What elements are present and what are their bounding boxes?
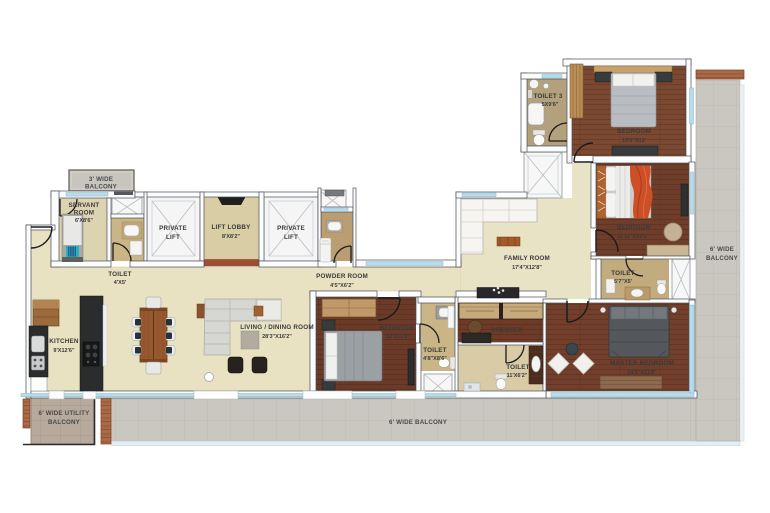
svg-text:DRESSER: DRESSER xyxy=(491,327,523,334)
svg-text:8'X8'2": 8'X8'2" xyxy=(222,234,240,240)
svg-text:TOILET: TOILET xyxy=(611,270,634,277)
svg-text:BEDROOM: BEDROOM xyxy=(617,128,651,135)
svg-text:BALCONY: BALCONY xyxy=(48,419,81,426)
svg-text:ROOM: ROOM xyxy=(74,210,94,217)
svg-text:11'11"X12'6": 11'11"X12'6" xyxy=(617,234,650,240)
svg-text:SERVANT: SERVANT xyxy=(69,202,100,209)
svg-text:4'8"X8'6": 4'8"X8'6" xyxy=(423,356,447,362)
svg-text:TOILET: TOILET xyxy=(423,347,446,354)
svg-text:LIFT: LIFT xyxy=(284,234,298,241)
svg-text:KITCHEN: KITCHEN xyxy=(49,338,79,345)
svg-text:LIVING / DINING ROOM: LIVING / DINING ROOM xyxy=(240,324,314,331)
svg-text:15'5"X12': 15'5"X12' xyxy=(622,138,647,144)
svg-text:FAMILY ROOM: FAMILY ROOM xyxy=(504,255,550,262)
svg-text:LIFT LOBBY: LIFT LOBBY xyxy=(211,224,251,231)
svg-text:6'X8'6": 6'X8'6" xyxy=(75,218,93,224)
svg-text:6' WIDE BALCONY: 6' WIDE BALCONY xyxy=(389,419,448,426)
svg-text:12'X11'8": 12'X11'8" xyxy=(386,334,410,340)
svg-text:BEDROOM: BEDROOM xyxy=(617,224,651,231)
svg-text:4'X5': 4'X5' xyxy=(114,280,127,286)
svg-text:TOILET: TOILET xyxy=(108,271,131,278)
svg-text:6' WIDE UTILITY: 6' WIDE UTILITY xyxy=(39,410,91,417)
svg-text:5X9'6": 5X9'6" xyxy=(542,102,559,108)
svg-text:PRIVATE: PRIVATE xyxy=(159,225,187,232)
svg-text:TOILET: TOILET xyxy=(506,364,529,371)
svg-text:11'X6'2": 11'X6'2" xyxy=(507,373,528,379)
svg-text:POWDER ROOM: POWDER ROOM xyxy=(316,273,368,280)
svg-text:28'3"X16'2": 28'3"X16'2" xyxy=(262,334,292,340)
svg-text:6' WIDE: 6' WIDE xyxy=(710,246,734,253)
svg-text:BALCONY: BALCONY xyxy=(85,184,118,191)
svg-text:5'7"X5': 5'7"X5' xyxy=(614,279,633,285)
svg-text:LIFT: LIFT xyxy=(166,234,180,241)
svg-text:PRIVATE: PRIVATE xyxy=(277,225,305,232)
svg-text:9'X12'6": 9'X12'6" xyxy=(53,348,75,354)
svg-text:17'4"X12'8": 17'4"X12'8" xyxy=(512,265,542,271)
svg-text:BALCONY: BALCONY xyxy=(706,255,739,262)
svg-text:18'5"X11'8": 18'5"X11'8" xyxy=(627,370,657,376)
svg-text:3' WIDE: 3' WIDE xyxy=(89,176,113,183)
svg-text:MASTER BEDROOM: MASTER BEDROOM xyxy=(610,360,674,367)
svg-text:4'5"X6'2": 4'5"X6'2" xyxy=(330,283,354,289)
svg-text:BEDROOM: BEDROOM xyxy=(380,325,414,332)
svg-text:TOILET 3: TOILET 3 xyxy=(533,93,562,100)
